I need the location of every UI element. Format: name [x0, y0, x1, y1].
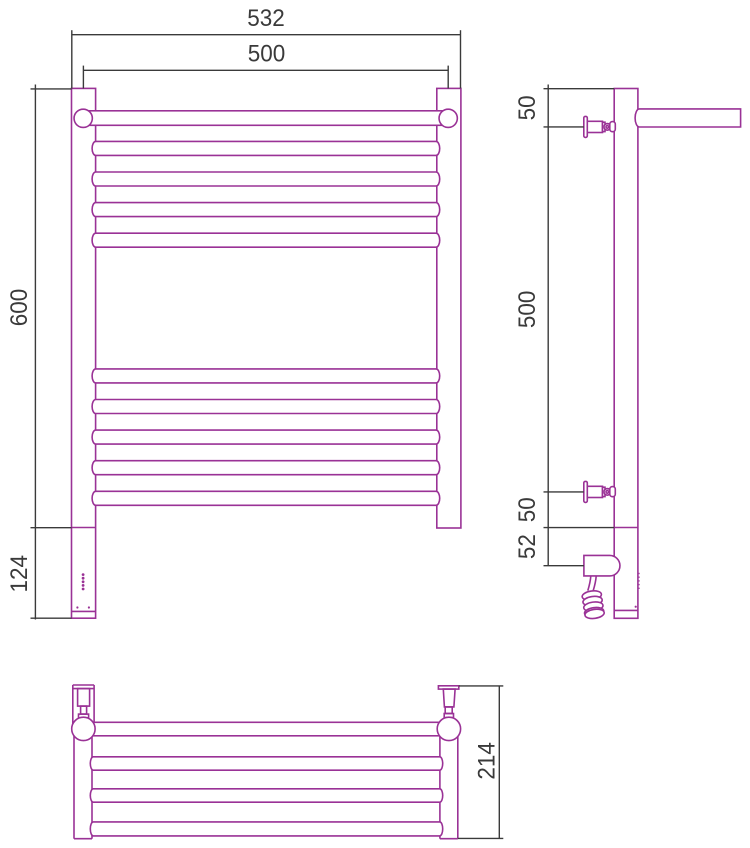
svg-text:52: 52 [514, 534, 541, 559]
svg-text:50: 50 [514, 497, 541, 522]
svg-text:50: 50 [514, 95, 541, 120]
svg-text:600: 600 [6, 289, 33, 327]
svg-text:500: 500 [514, 291, 541, 329]
svg-text:500: 500 [248, 41, 286, 68]
svg-text:124: 124 [6, 555, 33, 593]
svg-text:214: 214 [474, 742, 501, 780]
svg-text:532: 532 [247, 5, 285, 32]
